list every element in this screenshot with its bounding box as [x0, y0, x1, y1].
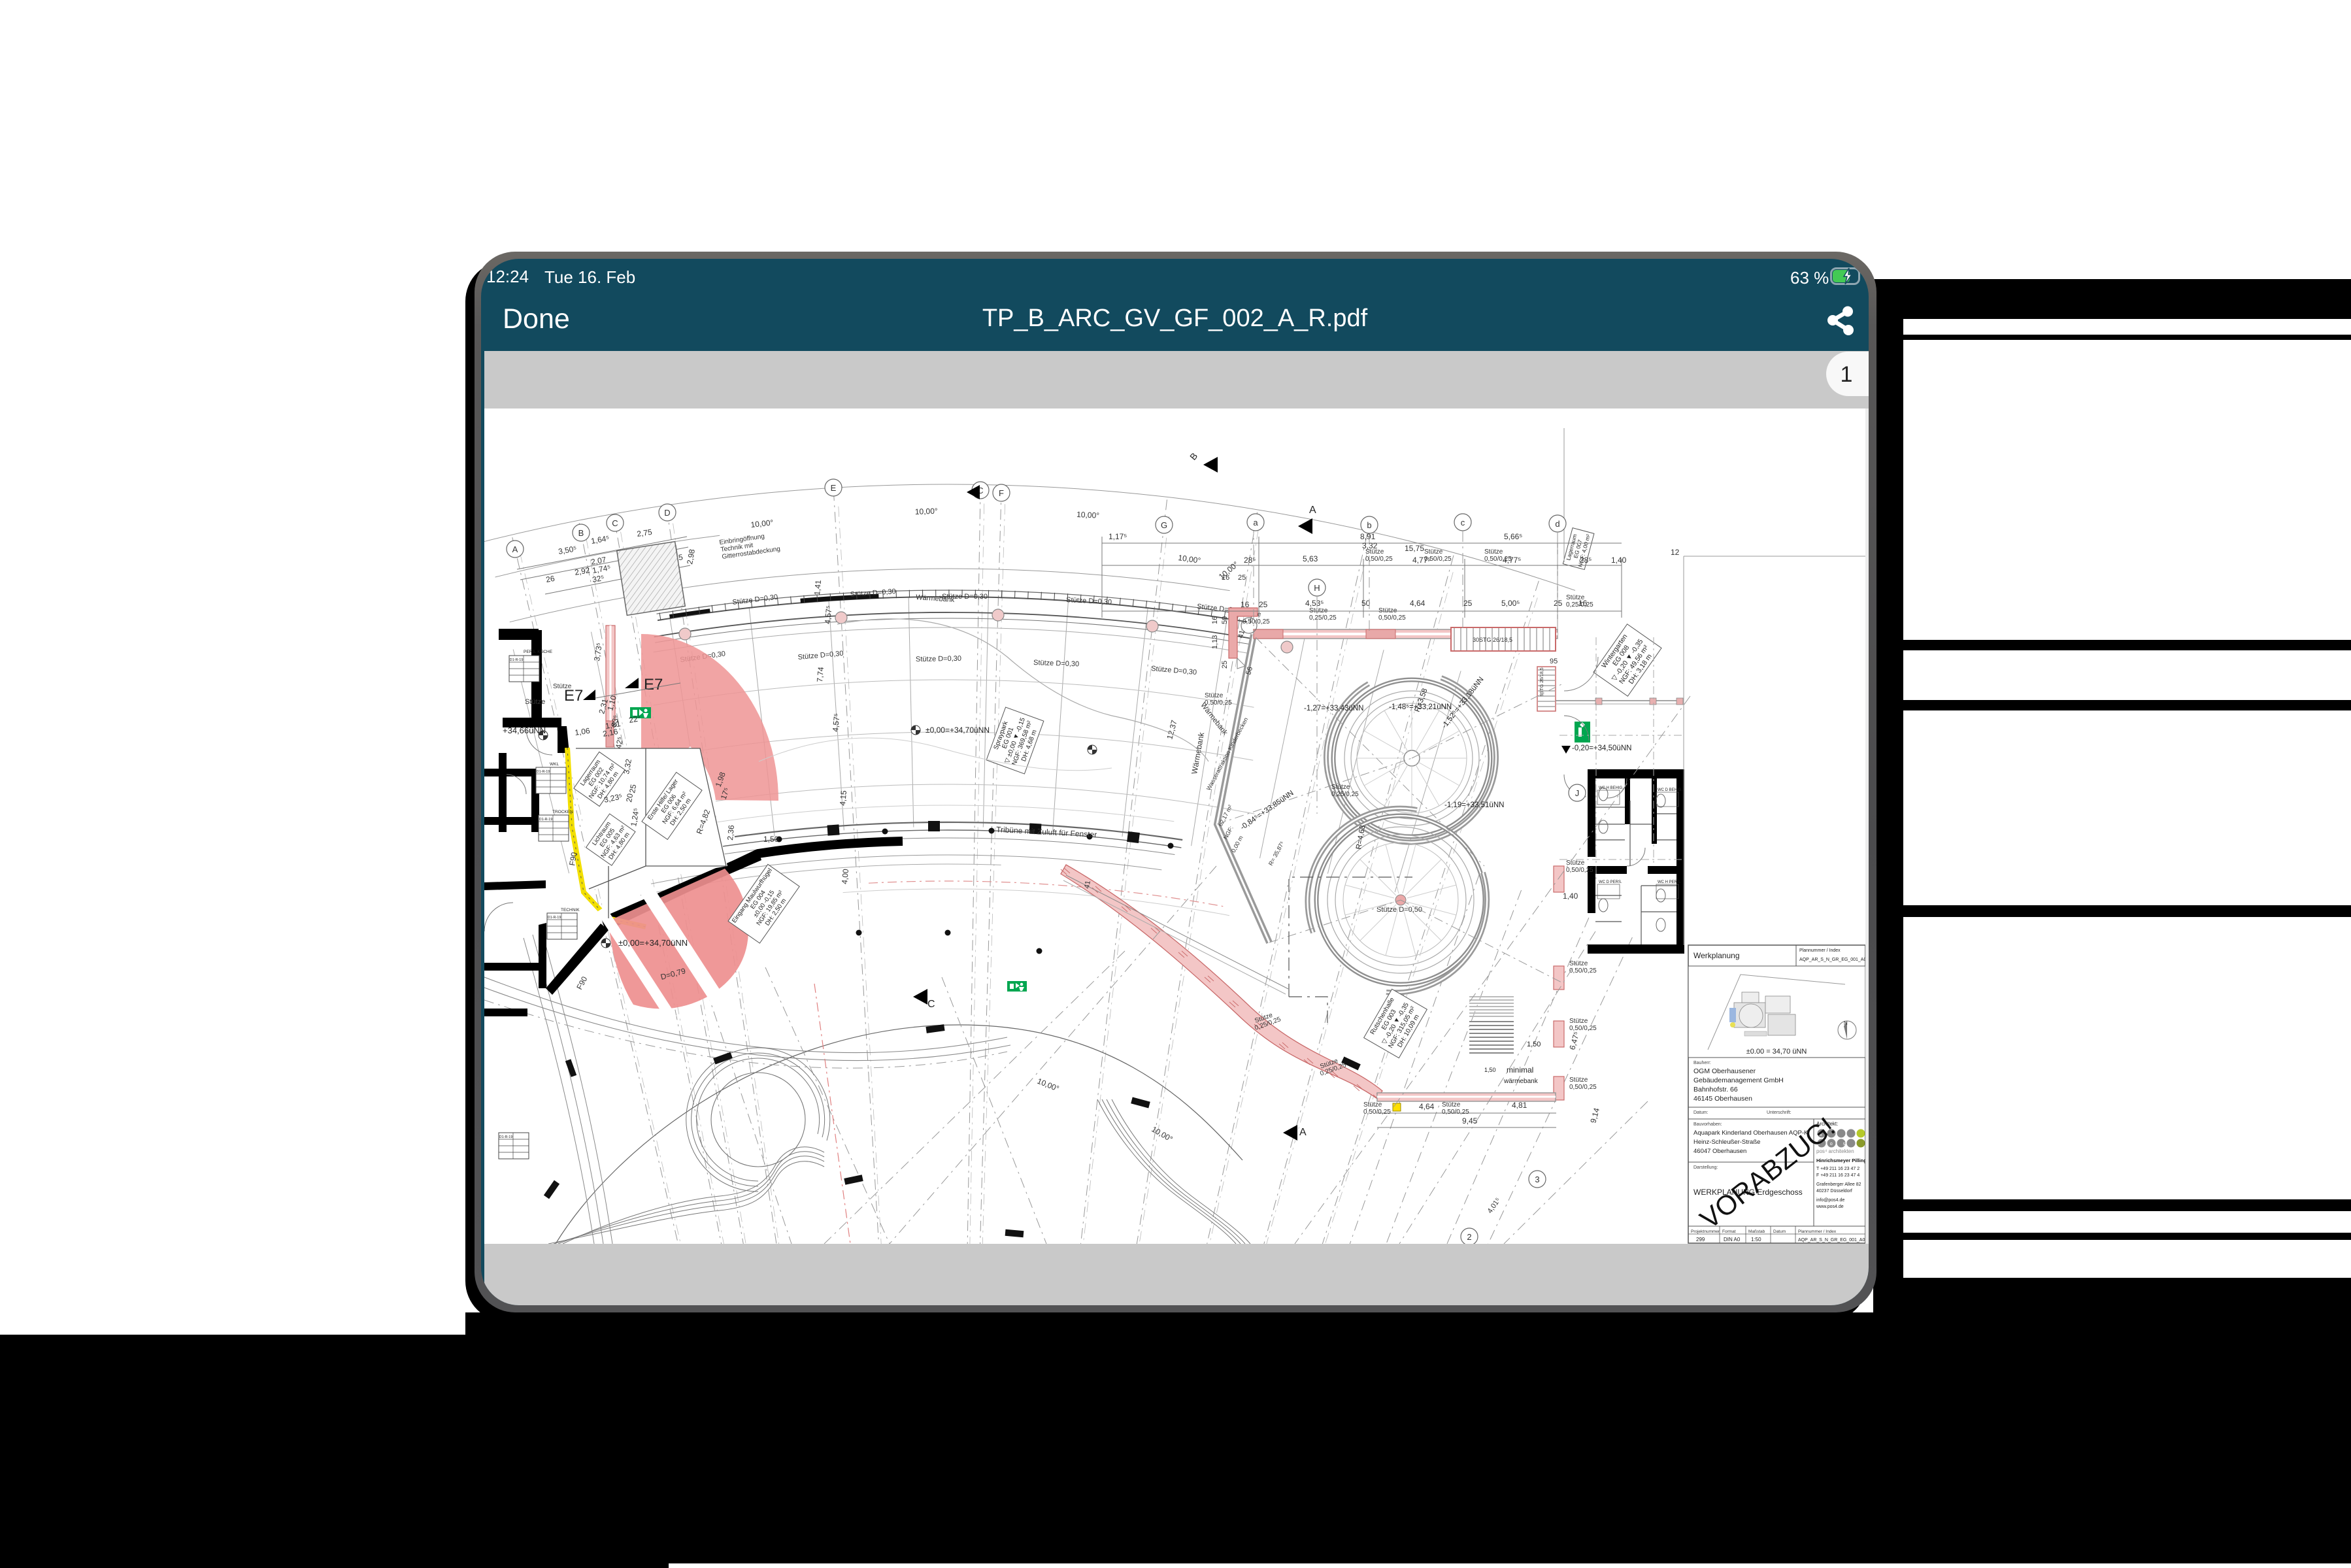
svg-text:Stütze D=0,30: Stütze D=0,30 — [1033, 659, 1079, 668]
svg-text:4,77⁵: 4,77⁵ — [1412, 556, 1431, 565]
svg-text:Stütze: Stütze — [1569, 960, 1588, 967]
svg-text:-1,19=+33,51üNN: -1,19=+33,51üNN — [1444, 801, 1504, 809]
svg-text:Bauvorhaben:: Bauvorhaben: — [1693, 1122, 1722, 1127]
svg-text:AQP_AR_S_N_GR_EG_001_A0__: AQP_AR_S_N_GR_EG_001_A0__ — [1799, 958, 1865, 962]
svg-text:±0,00=+34,70üNN: ±0,00=+34,70üNN — [618, 938, 688, 948]
svg-text:Stütze: Stütze — [1569, 1076, 1588, 1084]
svg-text:5,63: 5,63 — [1303, 554, 1318, 563]
svg-text:A: A — [1309, 505, 1316, 516]
svg-text:4,15: 4,15 — [838, 790, 848, 806]
svg-text:28⁵: 28⁵ — [1580, 556, 1592, 565]
svg-text:4,00: 4,00 — [840, 868, 850, 884]
svg-text:J: J — [1575, 788, 1580, 798]
svg-text:Projektnummer: Projektnummer — [1691, 1229, 1720, 1234]
svg-text:0,50/0,25: 0,50/0,25 — [1569, 1084, 1597, 1091]
svg-text:0,50/0,25: 0,50/0,25 — [1569, 1025, 1597, 1032]
svg-text:299: 299 — [1696, 1237, 1705, 1243]
svg-text:4,57⁵: 4,57⁵ — [823, 605, 833, 624]
svg-text:Heinz-Schleußer-Straße: Heinz-Schleußer-Straße — [1693, 1139, 1760, 1146]
svg-text:C: C — [927, 999, 935, 1010]
svg-text:WC H PERS.: WC H PERS. — [1658, 880, 1681, 884]
svg-text:25: 25 — [1221, 661, 1229, 669]
svg-text:b: b — [1367, 520, 1371, 530]
svg-text:Stütze: Stütze — [525, 698, 545, 706]
svg-text:Stütze: Stütze — [1484, 548, 1503, 556]
svg-text:0,50/0,25: 0,50/0,25 — [1378, 614, 1406, 622]
svg-text:±0,00=+34,70üNN: ±0,00=+34,70üNN — [925, 726, 990, 735]
svg-text:OGM Oberhausener: OGM Oberhausener — [1693, 1067, 1756, 1075]
svg-text:10,00°: 10,00° — [915, 507, 938, 516]
svg-text:-1,27=+33,43üNN: -1,27=+33,43üNN — [1304, 705, 1363, 712]
svg-text:4,64: 4,64 — [1410, 599, 1426, 608]
svg-text:0,50/0,25: 0,50/0,25 — [1569, 967, 1597, 975]
svg-text:30STG 26/18,5: 30STG 26/18,5 — [1473, 637, 1512, 643]
svg-text:d: d — [1555, 519, 1559, 529]
svg-text:1,17⁵: 1,17⁵ — [1109, 532, 1127, 541]
svg-text:Grafenberger Allee 82: Grafenberger Allee 82 — [1816, 1182, 1861, 1187]
svg-text:Stütze D=0,30: Stütze D=0,30 — [916, 655, 961, 663]
svg-text:E7: E7 — [644, 676, 663, 693]
svg-text:9STG 26/18,5: 9STG 26/18,5 — [1540, 667, 1544, 696]
svg-text:D1-R-19: D1-R-19 — [548, 916, 561, 920]
svg-text:46047 Oberhausen: 46047 Oberhausen — [1693, 1148, 1746, 1155]
svg-text:9,45: 9,45 — [1462, 1116, 1478, 1126]
svg-text:4,64: 4,64 — [1419, 1102, 1435, 1111]
svg-text:0,50/0,25: 0,50/0,25 — [1566, 867, 1593, 874]
svg-text:D1-R-19: D1-R-19 — [539, 818, 553, 822]
svg-text:0,25/0,25: 0,25/0,25 — [1331, 791, 1359, 798]
svg-text:16: 16 — [1578, 599, 1588, 608]
svg-text:Darstellung:: Darstellung: — [1693, 1165, 1718, 1170]
svg-text:Plannummer / Index: Plannummer / Index — [1799, 948, 1841, 953]
svg-text:40237 Düsseldorf: 40237 Düsseldorf — [1816, 1189, 1852, 1193]
svg-text:TROCKEN: TROCKEN — [552, 810, 573, 814]
svg-text:12: 12 — [1671, 548, 1680, 557]
svg-text:WC D PERS.: WC D PERS. — [1599, 880, 1622, 884]
svg-text:0,50/0,25: 0,50/0,25 — [1205, 699, 1232, 707]
svg-text:1,13: 1,13 — [1211, 635, 1219, 649]
svg-text:F +49 211 16 23 47 4: F +49 211 16 23 47 4 — [1816, 1173, 1859, 1178]
svg-text:1,50: 1,50 — [1527, 1041, 1541, 1048]
svg-text:Format: Format — [1722, 1229, 1736, 1234]
svg-text:a: a — [1253, 518, 1258, 527]
svg-text:info@pos4.de: info@pos4.de — [1816, 1198, 1844, 1203]
svg-text:25: 25 — [1463, 599, 1473, 608]
svg-text:5,66⁵: 5,66⁵ — [1504, 532, 1522, 541]
svg-text:C: C — [612, 518, 618, 528]
svg-text:TECHNIK: TECHNIK — [561, 908, 580, 912]
svg-text:16: 16 — [1211, 616, 1219, 624]
svg-text:G: G — [1161, 520, 1167, 530]
svg-text:Stütze: Stütze — [1442, 1101, 1461, 1109]
svg-text:DIN A0: DIN A0 — [1724, 1237, 1741, 1243]
svg-text:10,00°: 10,00° — [1076, 510, 1100, 520]
svg-text:D: D — [664, 508, 670, 518]
svg-text:1,40: 1,40 — [1563, 892, 1578, 901]
svg-text:www.pos4.de: www.pos4.de — [1816, 1205, 1844, 1209]
svg-text:B: B — [578, 528, 584, 538]
svg-text:Stütze: Stütze — [1424, 548, 1443, 556]
svg-text:1,50: 1,50 — [1484, 1067, 1496, 1073]
svg-text:3: 3 — [1535, 1175, 1539, 1184]
svg-text:0,50/0,25: 0,50/0,25 — [1442, 1109, 1469, 1116]
svg-text:Bauherr:: Bauherr: — [1693, 1061, 1711, 1065]
svg-text:Werkplanung: Werkplanung — [1693, 951, 1740, 960]
svg-text:D1-R-19: D1-R-19 — [510, 658, 524, 662]
svg-text:41: 41 — [1083, 880, 1092, 889]
svg-text:25: 25 — [1238, 574, 1246, 582]
svg-text:AQP_AR_S_N_GR_EG_001_A0__: AQP_AR_S_N_GR_EG_001_A0__ — [1798, 1238, 1865, 1243]
svg-text:2: 2 — [1467, 1232, 1471, 1242]
svg-text:25: 25 — [1554, 599, 1563, 608]
svg-text:N: N — [1844, 1020, 1848, 1026]
svg-text:D1-R-19: D1-R-19 — [537, 770, 550, 774]
svg-text:WC H BEHIG.: WC H BEHIG. — [1599, 786, 1624, 790]
svg-text:Stütze: Stütze — [553, 683, 572, 690]
svg-text:0,50/0,25: 0,50/0,25 — [1363, 1109, 1391, 1116]
svg-text:16: 16 — [1241, 600, 1250, 609]
svg-text:A: A — [1299, 1127, 1307, 1138]
svg-text:Stütze: Stütze — [1566, 859, 1585, 867]
svg-text:±0.00 = 34,70 üNN: ±0.00 = 34,70 üNN — [1746, 1048, 1807, 1056]
svg-text:0,25/0,25: 0,25/0,25 — [1309, 614, 1337, 622]
svg-text:Datum:: Datum: — [1693, 1110, 1709, 1115]
svg-text:15,75: 15,75 — [1405, 544, 1424, 553]
svg-text:1,50: 1,50 — [763, 835, 779, 844]
svg-text:PERS. KÜCHE: PERS. KÜCHE — [524, 649, 553, 654]
svg-text:D1-R-19: D1-R-19 — [499, 1135, 513, 1139]
svg-text:2,36: 2,36 — [725, 824, 736, 841]
svg-text:3,32: 3,32 — [1362, 541, 1378, 550]
svg-text:1,41: 1,41 — [812, 579, 823, 595]
svg-text:25: 25 — [1259, 600, 1268, 609]
svg-text:20: 20 — [624, 793, 635, 803]
svg-text:Stütze: Stütze — [1205, 692, 1224, 699]
svg-text:WKL: WKL — [550, 762, 559, 767]
svg-text:Maßstab: Maßstab — [1748, 1229, 1765, 1234]
svg-text:Stütze: Stütze — [1331, 784, 1350, 791]
svg-text:Hinrichsmeyer Pilling GbR: Hinrichsmeyer Pilling GbR — [1816, 1158, 1865, 1163]
svg-text:Gebäudemanagement GmbH: Gebäudemanagement GmbH — [1693, 1076, 1784, 1084]
svg-text:7,74: 7,74 — [815, 666, 825, 682]
svg-text:wärmebank: wärmebank — [1503, 1078, 1539, 1085]
svg-text:25: 25 — [627, 784, 638, 794]
svg-text:95: 95 — [1550, 658, 1558, 665]
svg-text:Bahnhofstr. 66: Bahnhofstr. 66 — [1693, 1086, 1738, 1093]
svg-text:1,40: 1,40 — [1611, 556, 1627, 565]
svg-text:A: A — [512, 544, 518, 554]
svg-text:4,53⁵: 4,53⁵ — [1305, 599, 1324, 608]
svg-text:Unterschrift:: Unterschrift: — [1767, 1110, 1792, 1115]
svg-text:WC D BEHIG.: WC D BEHIG. — [1658, 788, 1682, 792]
svg-text:T +49 211 16 23 47 2: T +49 211 16 23 47 2 — [1816, 1167, 1859, 1171]
svg-text:Stütze: Stütze — [1569, 1018, 1588, 1025]
svg-text:28⁵: 28⁵ — [1244, 556, 1256, 565]
svg-text:F: F — [999, 488, 1004, 498]
svg-text:Plannummer / Index: Plannummer / Index — [1798, 1229, 1837, 1234]
svg-text:4,81: 4,81 — [1512, 1101, 1527, 1110]
svg-text:Stütze: Stütze — [1363, 1101, 1382, 1109]
svg-text:4,57⁵: 4,57⁵ — [831, 713, 841, 732]
svg-text:50: 50 — [1221, 616, 1229, 624]
svg-text:46145 Oberhausen: 46145 Oberhausen — [1693, 1095, 1752, 1103]
svg-text:E: E — [831, 483, 837, 493]
svg-text:5,00⁵: 5,00⁵ — [1501, 599, 1520, 608]
svg-text:-0,20=+34,50üNN: -0,20=+34,50üNN — [1572, 744, 1631, 752]
svg-text:26: 26 — [545, 574, 556, 584]
svg-text:c: c — [1461, 518, 1465, 527]
svg-text:4,77⁵: 4,77⁵ — [1503, 556, 1521, 565]
svg-text:+34,66üNN: +34,66üNN — [503, 726, 546, 735]
svg-text:Datum: Datum — [1773, 1229, 1786, 1234]
svg-text:1:50: 1:50 — [1751, 1237, 1761, 1243]
svg-text:H: H — [1314, 583, 1320, 593]
svg-text:Stütze D=0,50: Stütze D=0,50 — [1376, 906, 1422, 914]
